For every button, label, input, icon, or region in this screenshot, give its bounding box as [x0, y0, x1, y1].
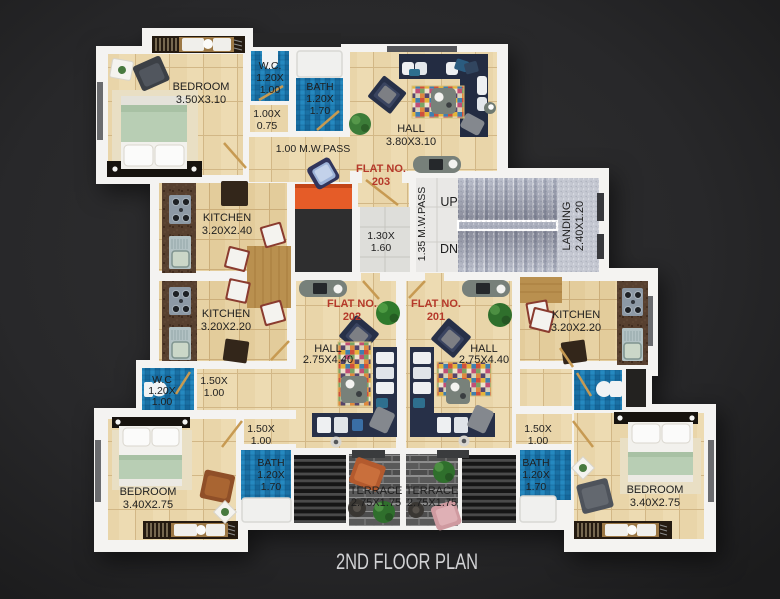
- svg-text:3.40X2.75: 3.40X2.75: [123, 499, 173, 511]
- svg-text:3.40X2.75: 3.40X2.75: [630, 497, 680, 509]
- svg-text:0.75: 0.75: [257, 120, 278, 132]
- svg-text:2.75X1.75: 2.75X1.75: [407, 497, 457, 509]
- svg-text:BEDROOM: BEDROOM: [120, 486, 177, 498]
- svg-text:2ND FLOOR PLAN: 2ND FLOOR PLAN: [336, 550, 478, 575]
- svg-text:3.20X2.20: 3.20X2.20: [201, 321, 251, 333]
- svg-text:3.20X2.20: 3.20X2.20: [551, 322, 601, 334]
- svg-text:UP: UP: [440, 195, 457, 209]
- svg-text:TERRACE: TERRACE: [350, 485, 403, 497]
- svg-text:203: 203: [372, 176, 390, 188]
- svg-text:KITCHEN: KITCHEN: [202, 308, 250, 320]
- svg-text:FLAT NO.: FLAT NO.: [411, 298, 461, 310]
- svg-text:1.00 M.W.PASS: 1.00 M.W.PASS: [276, 143, 351, 155]
- svg-text:2.75X1.75: 2.75X1.75: [351, 497, 401, 509]
- svg-text:KITCHEN: KITCHEN: [203, 212, 251, 224]
- svg-text:TERRACE: TERRACE: [406, 485, 459, 497]
- svg-text:1.70: 1.70: [261, 481, 282, 493]
- svg-text:1.60: 1.60: [371, 242, 392, 254]
- svg-text:W.C.: W.C.: [259, 60, 282, 72]
- svg-text:1.50X: 1.50X: [524, 423, 551, 435]
- svg-text:BATH: BATH: [306, 81, 333, 93]
- svg-text:BATH: BATH: [257, 457, 284, 469]
- svg-text:FLAT NO.: FLAT NO.: [327, 298, 377, 310]
- svg-text:1.00: 1.00: [260, 84, 281, 96]
- svg-text:1.00: 1.00: [152, 396, 173, 408]
- svg-text:1.70: 1.70: [310, 105, 331, 117]
- svg-text:3.50X3.10: 3.50X3.10: [176, 94, 226, 106]
- svg-text:1.50X: 1.50X: [247, 423, 274, 435]
- svg-text:1.00X: 1.00X: [253, 108, 280, 120]
- svg-text:201: 201: [427, 311, 445, 323]
- svg-text:3.80X3.10: 3.80X3.10: [386, 136, 436, 148]
- svg-text:3.20X2.40: 3.20X2.40: [202, 225, 252, 237]
- svg-text:1.35 M.W.PASS: 1.35 M.W.PASS: [416, 187, 428, 262]
- svg-text:1.70: 1.70: [526, 481, 547, 493]
- svg-text:1.00: 1.00: [204, 387, 225, 399]
- svg-text:202: 202: [343, 311, 361, 323]
- svg-text:1.30X: 1.30X: [367, 230, 394, 242]
- svg-text:1.20X: 1.20X: [306, 93, 333, 105]
- svg-text:1.00: 1.00: [528, 435, 549, 447]
- svg-text:1.50X: 1.50X: [200, 375, 227, 387]
- svg-text:2.75X4.40: 2.75X4.40: [459, 354, 509, 366]
- svg-text:1.20X: 1.20X: [256, 72, 283, 84]
- svg-text:2.40X1.20: 2.40X1.20: [574, 201, 586, 251]
- svg-text:LANDING: LANDING: [561, 202, 573, 251]
- svg-text:BATH: BATH: [522, 457, 549, 469]
- svg-text:FLAT NO.: FLAT NO.: [356, 163, 406, 175]
- svg-text:BEDROOM: BEDROOM: [173, 81, 230, 93]
- svg-text:DN: DN: [440, 242, 458, 256]
- svg-text:1.00: 1.00: [251, 435, 272, 447]
- svg-text:BEDROOM: BEDROOM: [627, 484, 684, 496]
- svg-text:1.20X: 1.20X: [522, 469, 549, 481]
- svg-text:HALL: HALL: [397, 123, 425, 135]
- svg-text:1.20X: 1.20X: [257, 469, 284, 481]
- svg-text:2.75X4.40: 2.75X4.40: [303, 354, 353, 366]
- svg-text:KITCHEN: KITCHEN: [552, 309, 600, 321]
